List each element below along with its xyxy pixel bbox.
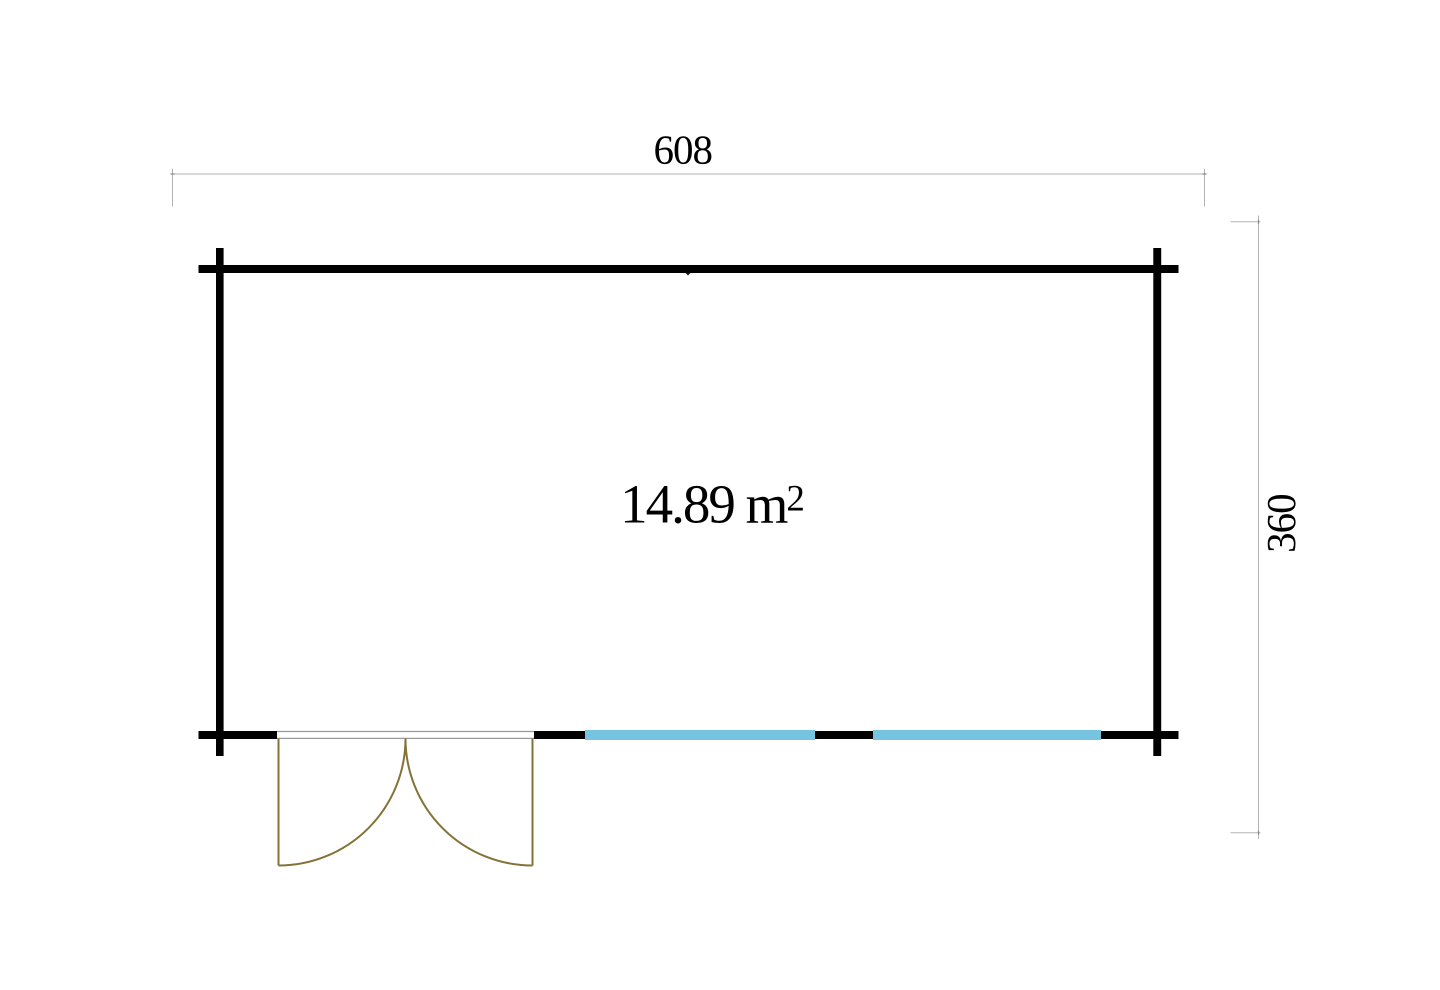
svg-text:608: 608 [653, 126, 712, 172]
svg-text:14.89 m2: 14.89 m2 [620, 473, 803, 534]
svg-text:360: 360 [1258, 494, 1304, 553]
